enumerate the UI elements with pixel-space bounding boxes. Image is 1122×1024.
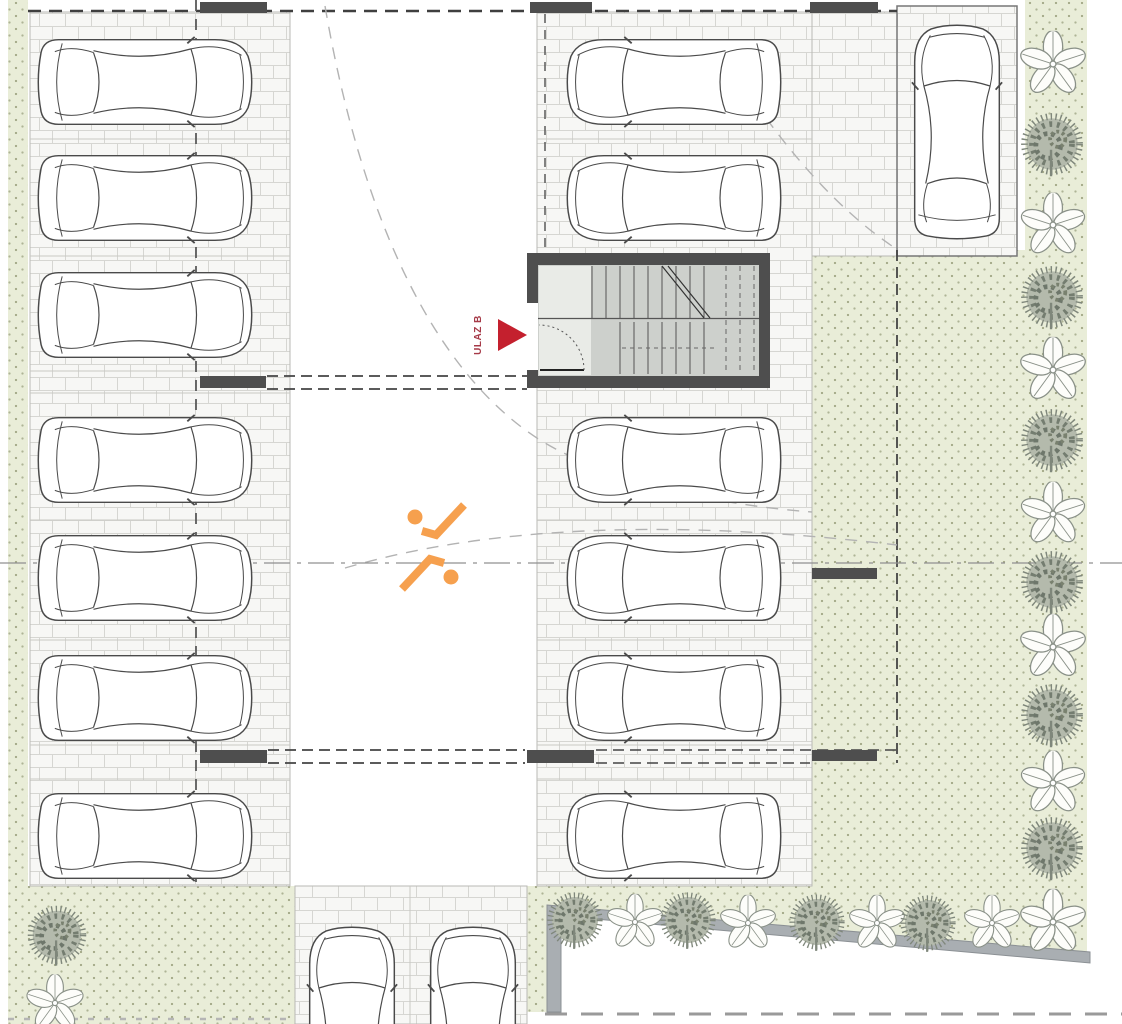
parked-car-icon: [567, 653, 780, 743]
parked-car-icon: [38, 153, 251, 243]
floor-plan-drawing: [0, 0, 1122, 1024]
parked-car-icon: [307, 927, 397, 1024]
entrance-label: ULAZ B: [443, 325, 513, 345]
parked-car-icon: [567, 791, 780, 881]
wall-segment: [812, 568, 877, 579]
driveway-top-right: [812, 12, 897, 256]
stair-core: [527, 253, 770, 388]
parked-car-icon: [567, 37, 780, 127]
wall-segment: [200, 2, 267, 13]
parked-car-icon: [38, 533, 251, 623]
parked-car-icon: [567, 533, 780, 623]
parked-car-icon: [567, 415, 780, 505]
wall-segment: [200, 750, 267, 763]
stair-landing: [539, 266, 591, 375]
parked-car-icon: [428, 927, 518, 1024]
wall-segment: [530, 2, 592, 13]
site-plan: ULAZ B: [0, 0, 1122, 1024]
parked-car-icon: [38, 653, 251, 743]
parked-car-icon: [567, 153, 780, 243]
parked-car-icon: [912, 25, 1002, 238]
wall-segment: [527, 750, 594, 763]
wall-segment: [810, 2, 878, 13]
parked-car-icon: [38, 791, 251, 881]
wall-segment: [812, 750, 877, 761]
parked-car-icon: [38, 270, 251, 360]
wall-segment: [200, 376, 266, 388]
parked-car-icon: [38, 37, 251, 127]
stair-door-opening: [527, 303, 538, 370]
parked-car-icon: [38, 415, 251, 505]
